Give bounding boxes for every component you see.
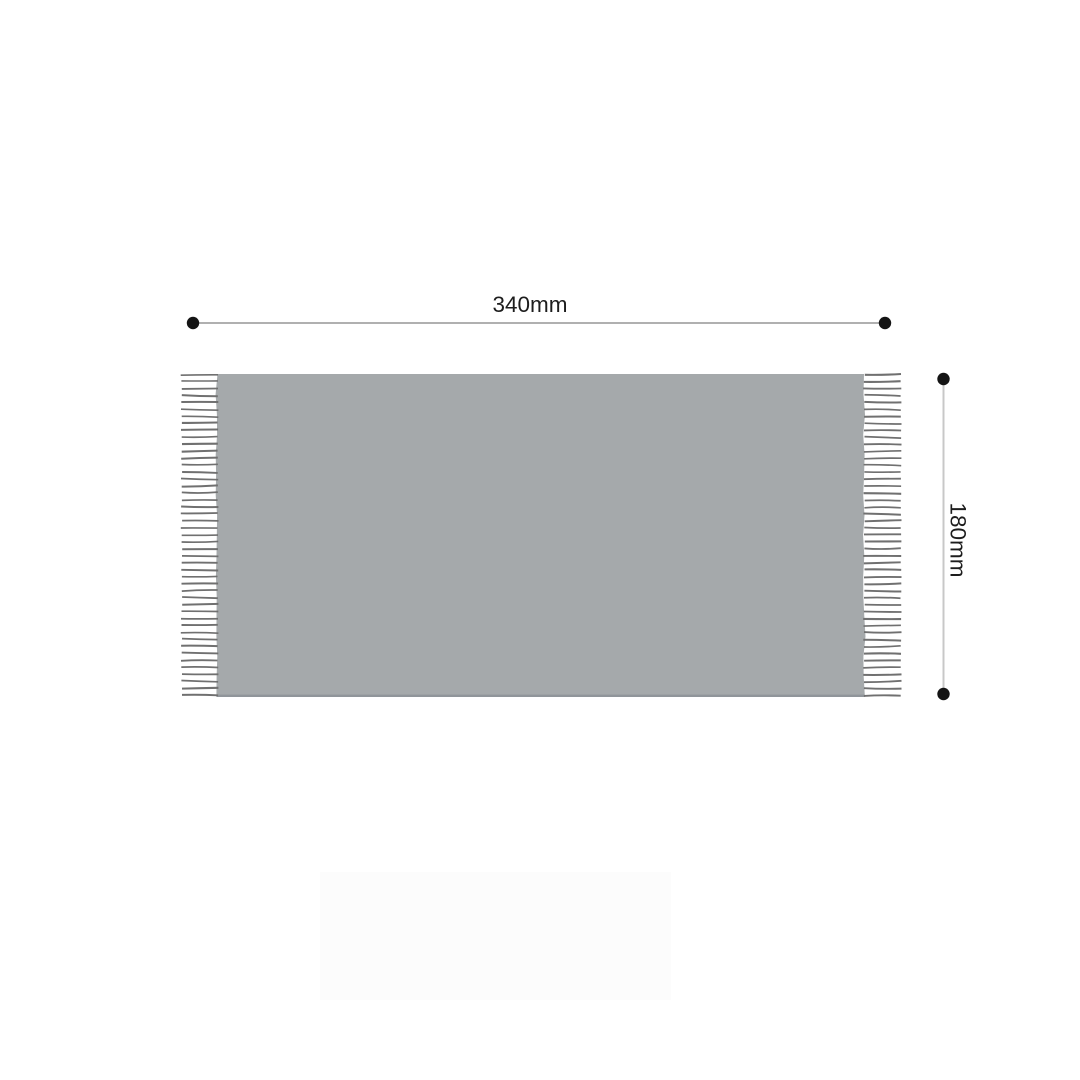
svg-text:340mm: 340mm [492,292,567,317]
svg-text:180mm: 180mm [946,502,971,577]
